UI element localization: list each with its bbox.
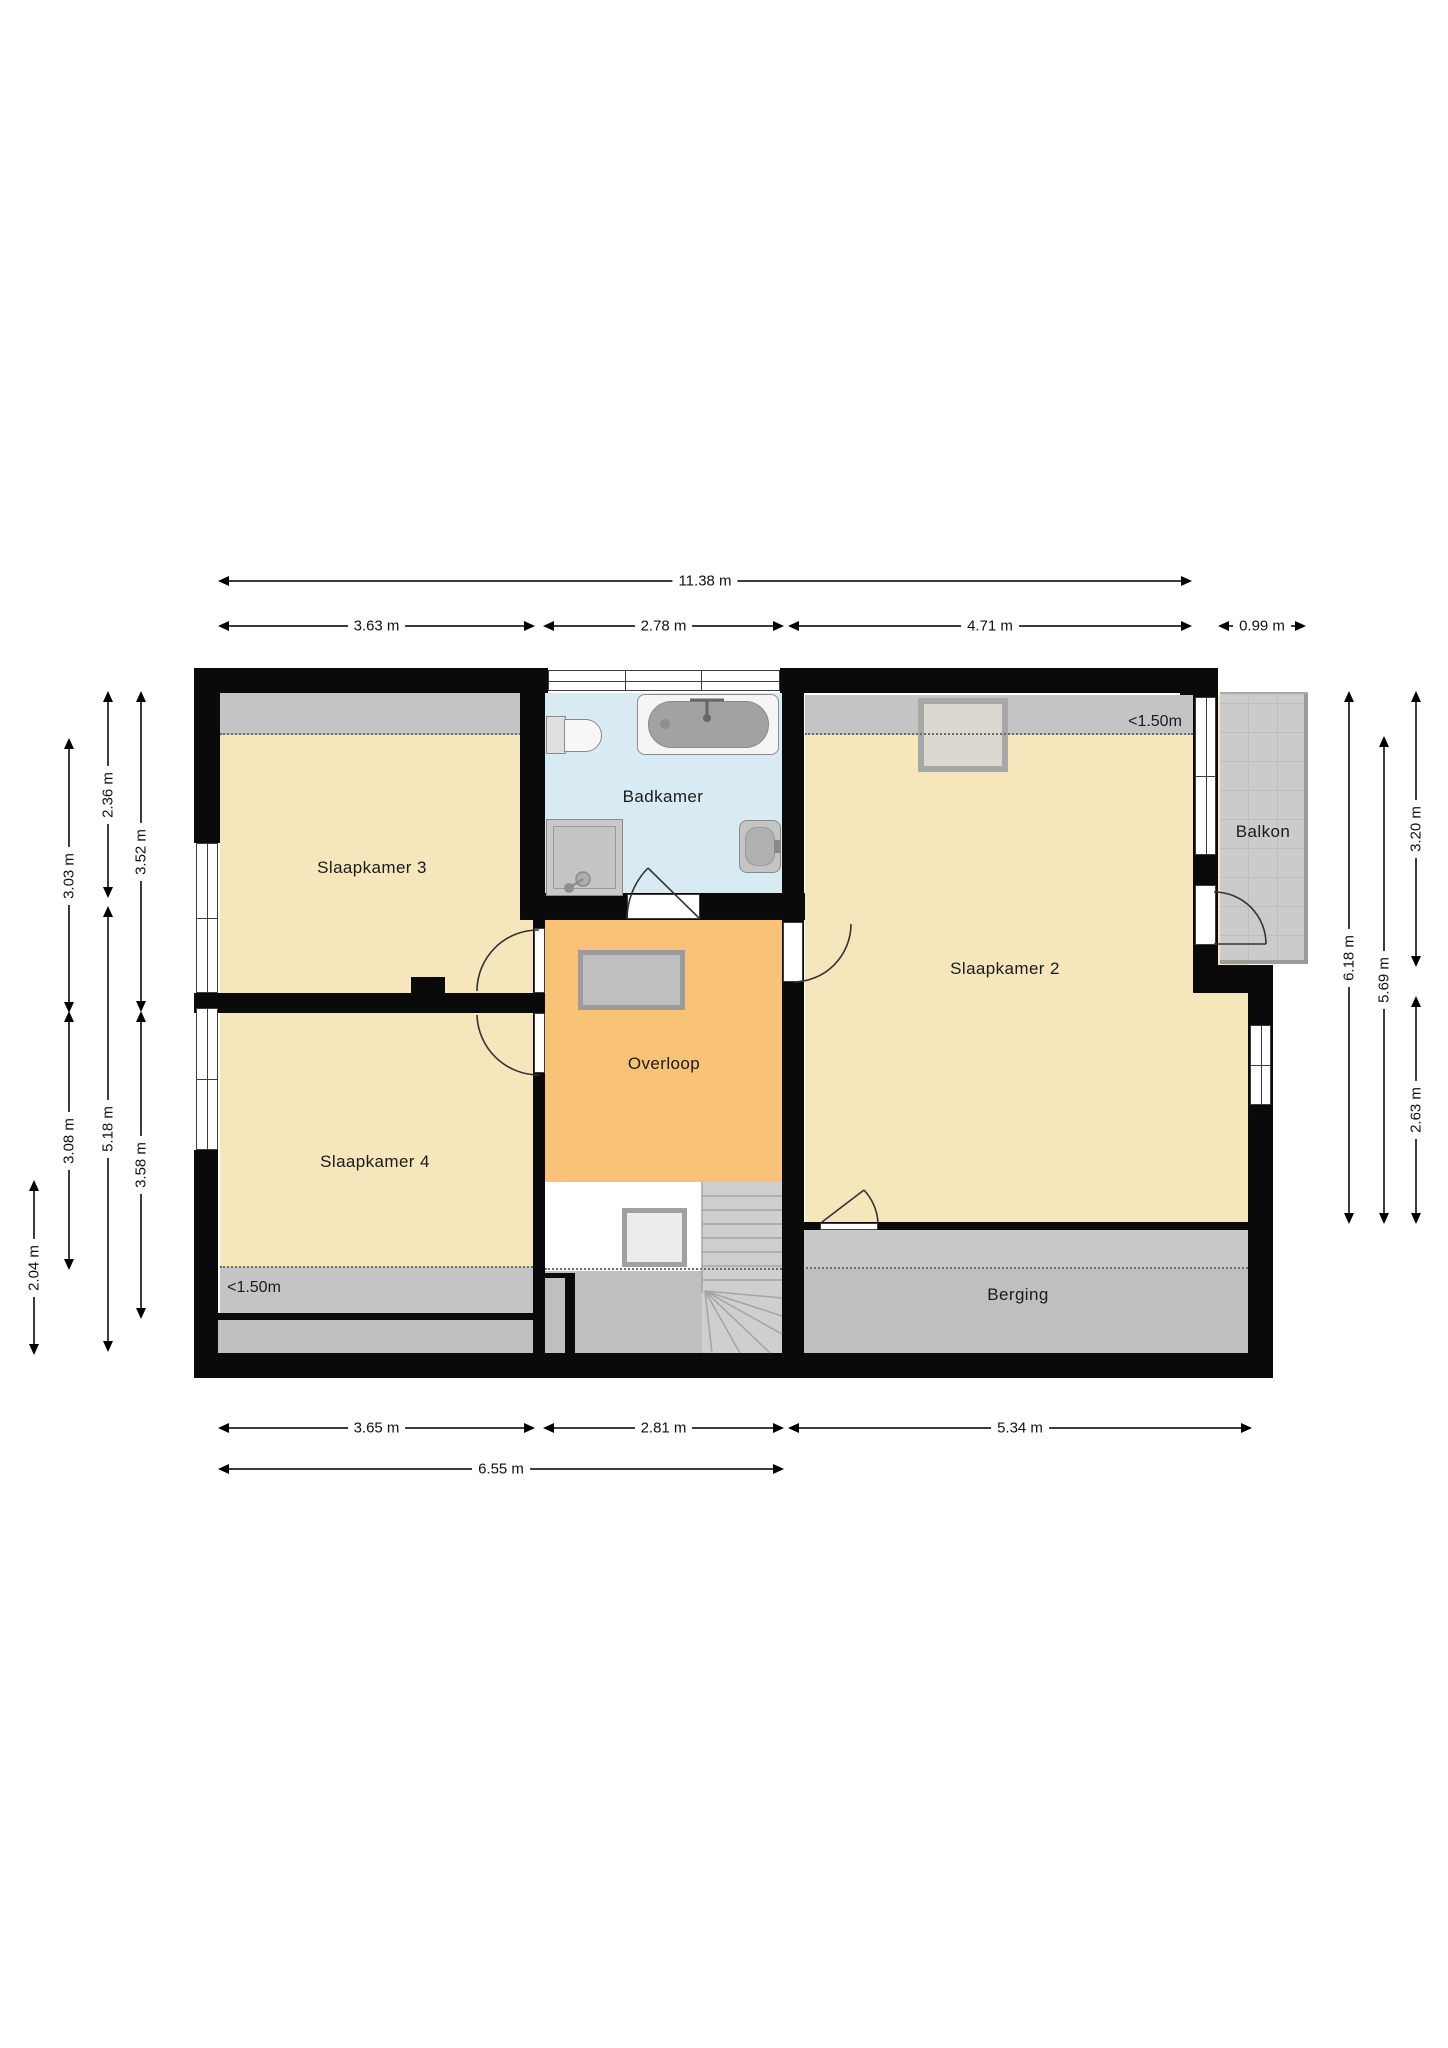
dim-arrow-up xyxy=(1411,691,1421,702)
dim-arrow-up xyxy=(136,1011,146,1022)
dim-arrow-right xyxy=(1181,576,1192,586)
door-badkamer xyxy=(627,894,700,919)
toilet-bowl xyxy=(564,719,602,752)
dimension-label: 2.63 m xyxy=(1408,1081,1425,1139)
ceiling-line-slaapkamer4 xyxy=(220,1266,533,1268)
wall-right-step xyxy=(1218,965,1273,993)
dimension-label: 6.18 m xyxy=(1341,929,1358,987)
wall xyxy=(1180,668,1218,695)
wall xyxy=(194,668,548,693)
room-slaapkamer4-attic-strip xyxy=(218,1320,533,1353)
balkon-railing-bottom xyxy=(1220,960,1308,964)
room-label-slaapkamer3: Slaapkamer 3 xyxy=(317,858,427,878)
dimension-label: 5.34 m xyxy=(991,1420,1049,1437)
dimension-horizontal: 5.34 m xyxy=(790,1427,1250,1429)
room-label-berging: Berging xyxy=(987,1285,1048,1305)
dimension-horizontal: 0.99 m xyxy=(1220,625,1304,627)
dim-arrow-down xyxy=(136,1308,146,1319)
chimney-block xyxy=(411,977,445,994)
door-slaapkamer3 xyxy=(534,928,545,993)
door-slaapkamer4 xyxy=(534,1013,545,1073)
balkon-railing-right xyxy=(1304,692,1308,964)
dim-arrow-up xyxy=(1379,736,1389,747)
bathtub-basin xyxy=(648,701,769,748)
dimension-horizontal: 6.55 m xyxy=(220,1468,782,1470)
window-slaapkamer3 xyxy=(196,843,218,993)
dim-arrow-left xyxy=(1218,621,1229,631)
dim-arrow-right xyxy=(773,1464,784,1474)
dim-arrow-left xyxy=(788,1423,799,1433)
dimension-vertical: 5.18 m xyxy=(107,908,109,1350)
dimension-label: 3.52 m xyxy=(133,823,150,881)
dim-arrow-up xyxy=(64,1011,74,1022)
dimension-label: 2.81 m xyxy=(635,1420,693,1437)
wall xyxy=(194,668,220,843)
window-slaapkamer4 xyxy=(196,1008,218,1150)
dimension-label: 3.03 m xyxy=(61,847,78,905)
dimension-horizontal: 2.78 m xyxy=(545,625,782,627)
dim-arrow-down xyxy=(1411,1213,1421,1224)
dimension-horizontal: 11.38 m xyxy=(220,580,1190,582)
dimension-label: 3.08 m xyxy=(61,1112,78,1170)
room-slaapkamer3-floor xyxy=(220,693,533,993)
dim-arrow-left xyxy=(218,576,229,586)
door-berging xyxy=(820,1223,878,1230)
dimension-label: 2.78 m xyxy=(635,618,693,635)
dim-arrow-right xyxy=(1181,621,1192,631)
room-label-slaapkamer2: Slaapkamer 2 xyxy=(950,959,1060,979)
dimension-vertical: 3.20 m xyxy=(1415,693,1417,965)
annotation-low-ceiling-slaapkamer4: <1.50m xyxy=(227,1279,281,1297)
window-frame-line xyxy=(549,681,779,682)
dim-arrow-down xyxy=(1411,956,1421,967)
dimension-vertical: 2.04 m xyxy=(33,1182,35,1353)
window-mullion xyxy=(197,1079,217,1080)
dim-arrow-up xyxy=(29,1180,39,1191)
dimension-label: 5.18 m xyxy=(100,1100,117,1158)
window-mullion xyxy=(701,671,702,690)
balkon-railing-top xyxy=(1220,692,1308,694)
dimension-label: 4.71 m xyxy=(961,618,1019,635)
dim-arrow-right xyxy=(1295,621,1306,631)
dim-arrow-right xyxy=(524,621,535,631)
dim-arrow-down xyxy=(64,1259,74,1270)
window-mullion xyxy=(197,918,217,919)
room-label-badkamer: Badkamer xyxy=(623,787,704,807)
skylight-overloop xyxy=(578,950,685,1010)
dim-arrow-right xyxy=(524,1423,535,1433)
dimension-label: 2.04 m xyxy=(26,1239,43,1297)
dim-arrow-right xyxy=(773,621,784,631)
wall-slaapkamer4-knee xyxy=(218,1313,533,1320)
wall-overloop-right xyxy=(782,693,804,1355)
wall xyxy=(780,668,1218,693)
dim-arrow-left xyxy=(218,621,229,631)
ceiling-line-berging xyxy=(790,1267,1248,1269)
dim-arrow-down xyxy=(103,887,113,898)
dim-arrow-up xyxy=(136,691,146,702)
window-slaapkamer2-balkon xyxy=(1195,697,1216,855)
shower-inner xyxy=(553,826,616,889)
dim-arrow-left xyxy=(543,1423,554,1433)
room-berging-floor-lower xyxy=(790,1269,1248,1355)
wall-slaapkamer3-4-divider xyxy=(194,993,545,1013)
window-mullion xyxy=(1251,1065,1270,1066)
dim-arrow-up xyxy=(1344,691,1354,702)
ceiling-line-stairwell xyxy=(545,1268,782,1270)
dim-arrow-down xyxy=(103,1341,113,1352)
dimension-vertical: 3.08 m xyxy=(68,1013,70,1268)
ceiling-line-slaapkamer3 xyxy=(220,733,533,735)
room-label-balkon: Balkon xyxy=(1236,822,1290,842)
dimension-label: 6.55 m xyxy=(472,1461,530,1478)
dimension-horizontal: 3.65 m xyxy=(220,1427,533,1429)
window-badkamer xyxy=(548,670,780,691)
wall xyxy=(194,1150,218,1378)
sink-basin xyxy=(745,827,775,866)
dimension-label: 0.99 m xyxy=(1233,618,1291,635)
dimension-vertical: 3.03 m xyxy=(68,740,70,1011)
dim-arrow-right xyxy=(1241,1423,1252,1433)
wall xyxy=(194,1353,1273,1378)
dimension-label: 11.38 m xyxy=(672,573,737,590)
dim-arrow-up xyxy=(1411,996,1421,1007)
floorplan: Slaapkamer 3Slaapkamer 4BadkamerOverloop… xyxy=(0,0,1448,2048)
ceiling-line-slaapkamer2 xyxy=(805,733,1193,735)
dim-arrow-up xyxy=(103,691,113,702)
dimension-horizontal: 3.63 m xyxy=(220,625,533,627)
room-slaapkamer3-lowceiling xyxy=(220,693,533,735)
dimension-label: 3.20 m xyxy=(1408,800,1425,858)
dim-arrow-left xyxy=(218,1423,229,1433)
door-slaapkamer2 xyxy=(783,922,803,982)
wall-understairs-h xyxy=(533,1273,575,1278)
dimension-label: 3.65 m xyxy=(348,1420,406,1437)
dim-arrow-down xyxy=(1379,1213,1389,1224)
window-slaapkamer2-right xyxy=(1250,1025,1271,1105)
dimension-label: 3.58 m xyxy=(133,1136,150,1194)
dim-arrow-right xyxy=(773,1423,784,1433)
room-berging-floor-upper xyxy=(790,1230,1248,1269)
dim-arrow-down xyxy=(1344,1213,1354,1224)
annotation-low-ceiling-slaapkamer2: <1.50m xyxy=(1128,713,1182,731)
dimension-vertical: 2.36 m xyxy=(107,693,109,896)
toilet-tank xyxy=(546,716,566,754)
dim-arrow-down xyxy=(29,1344,39,1355)
dimension-vertical: 6.18 m xyxy=(1348,693,1350,1222)
dimension-label: 5.69 m xyxy=(1376,951,1393,1009)
dimension-vertical: 2.63 m xyxy=(1415,998,1417,1222)
dim-arrow-left xyxy=(543,621,554,631)
dimension-horizontal: 4.71 m xyxy=(790,625,1190,627)
dimension-vertical: 5.69 m xyxy=(1383,738,1385,1222)
dimension-vertical: 3.58 m xyxy=(140,1013,142,1317)
room-label-overloop: Overloop xyxy=(628,1054,700,1074)
skylight-slaapkamer2 xyxy=(918,698,1008,772)
sink-tap xyxy=(774,840,781,853)
dim-arrow-left xyxy=(218,1464,229,1474)
window-mullion xyxy=(625,671,626,690)
dimension-vertical: 3.52 m xyxy=(140,693,142,1010)
dimension-label: 2.36 m xyxy=(100,766,117,824)
dimension-label: 3.63 m xyxy=(348,618,406,635)
door-balkon xyxy=(1195,885,1216,945)
wall-badkamer-left xyxy=(520,693,545,920)
dim-arrow-up xyxy=(103,906,113,917)
dimension-horizontal: 2.81 m xyxy=(545,1427,782,1429)
wall-understairs-v xyxy=(565,1273,575,1357)
window-mullion xyxy=(1196,776,1215,777)
dim-arrow-up xyxy=(64,738,74,749)
skylight-stairwell xyxy=(622,1208,687,1267)
room-label-slaapkamer4: Slaapkamer 4 xyxy=(320,1152,430,1172)
dim-arrow-left xyxy=(788,621,799,631)
